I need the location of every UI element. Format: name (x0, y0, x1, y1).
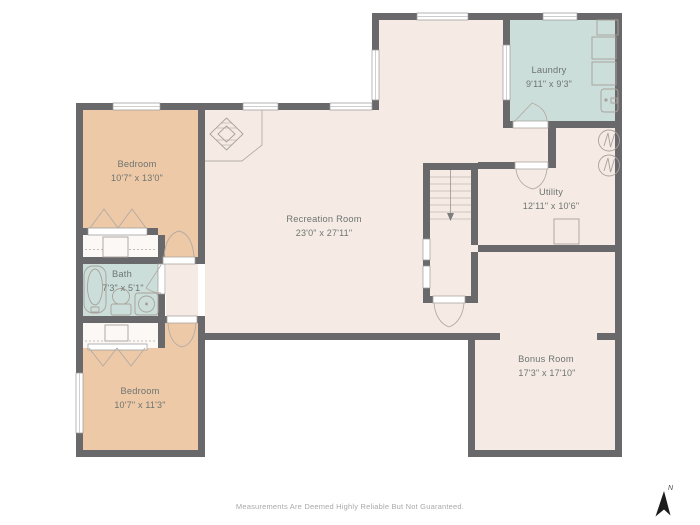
room-label-bonus-dims: 17'3" x 17'10" (518, 368, 575, 378)
footer-disclaimer: Measurements Are Deemed Highly Reliable … (236, 502, 464, 511)
room-label-bedroom2-dims: 10'7" x 11'3" (114, 400, 165, 410)
hallway-vestibule (166, 257, 198, 323)
north-arrow-icon (656, 491, 671, 517)
closet-shelf (103, 237, 128, 257)
room-label-bedroom2-name: Bedroom (120, 386, 159, 396)
room-label-bedroom1-dims: 10'7" x 13'0" (111, 173, 163, 183)
room-label-recreation-name: Recreation Room (286, 214, 361, 224)
room-label-laundry-name: Laundry (532, 65, 567, 75)
room-label-bedroom1-name: Bedroom (117, 159, 156, 169)
room-label-bath-name: Bath (112, 269, 132, 279)
closet-shelf (105, 325, 128, 341)
room-label-bonus-name: Bonus Room (518, 354, 574, 364)
floor-plan: Laundry 9'11" x 9'3" Utility 12'11" x 10… (0, 0, 700, 525)
room-label-bath-dims: 7'3" x 5'1" (102, 283, 144, 293)
room-label-recreation-dims: 23'0" x 27'11" (296, 228, 353, 238)
floor-plan-page: Laundry 9'11" x 9'3" Utility 12'11" x 10… (0, 0, 700, 525)
room-label-utility-name: Utility (539, 187, 563, 197)
north-label: N (668, 485, 674, 492)
room-label-laundry-dims: 9'11" x 9'3" (526, 79, 572, 89)
room-label-utility-dims: 12'11" x 10'6" (523, 201, 580, 211)
compass: N (656, 485, 675, 517)
